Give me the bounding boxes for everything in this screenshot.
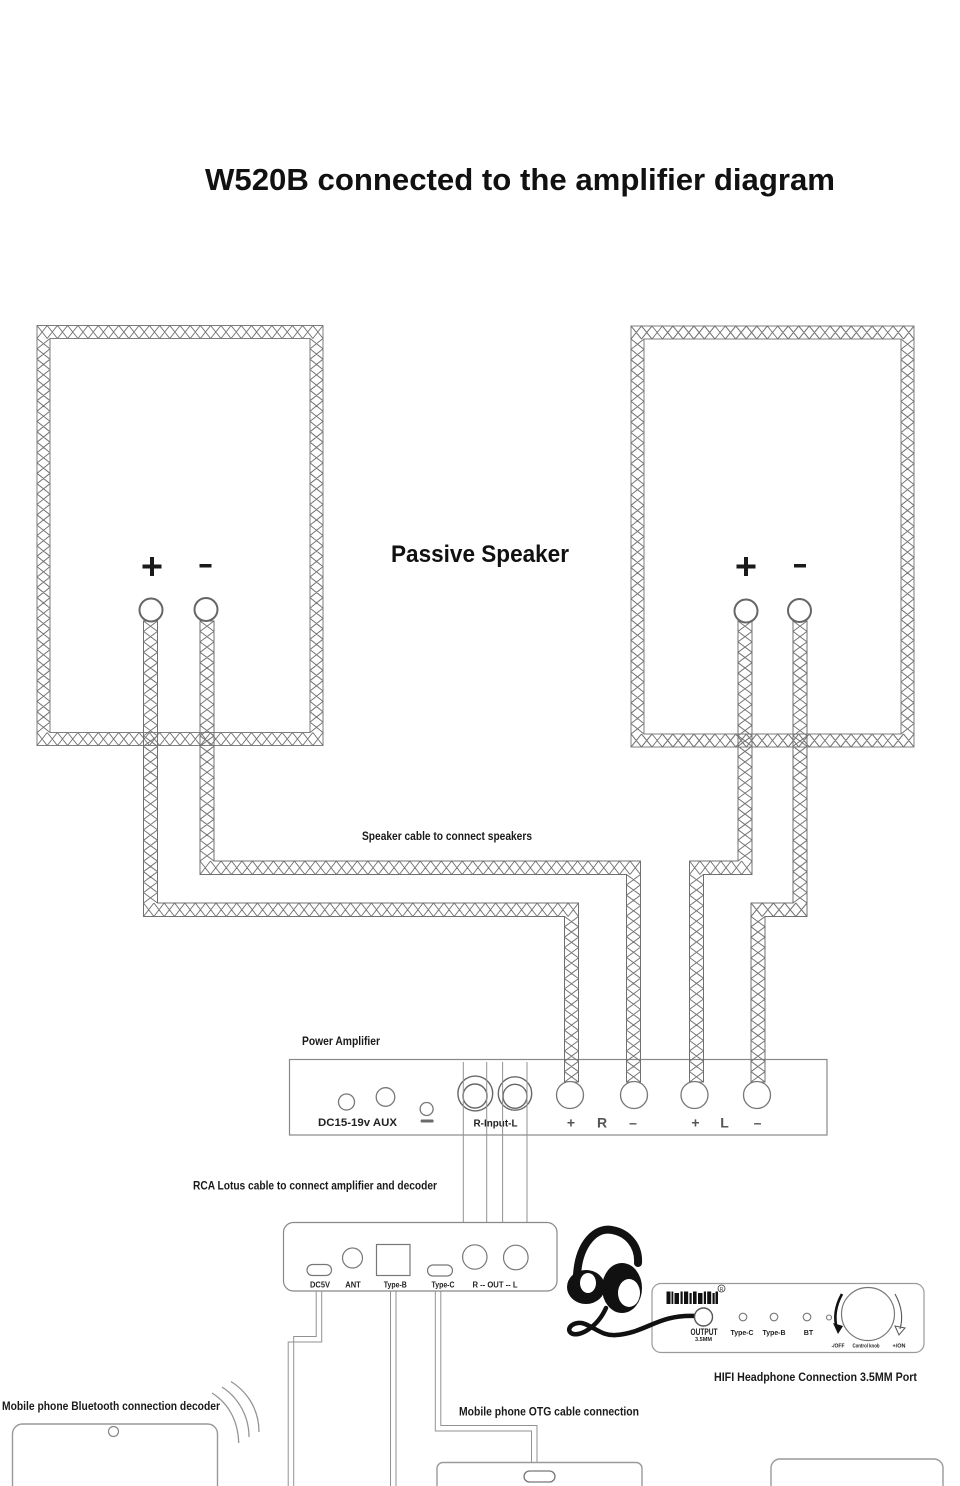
svg-text:W520B connected to the amplifi: W520B connected to the amplifier diagram [205, 162, 835, 197]
svg-text:–: – [629, 1115, 637, 1131]
svg-text:ANT: ANT [345, 1281, 361, 1290]
svg-text:Type-B: Type-B [763, 1328, 787, 1337]
svg-text:BT: BT [804, 1328, 814, 1337]
svg-text:R-Input-L: R-Input-L [474, 1118, 519, 1130]
svg-text:Power Amplifier: Power Amplifier [302, 1036, 380, 1048]
svg-text:R -- OUT -- L: R -- OUT -- L [473, 1281, 518, 1290]
svg-text:Mobile phone Bluetooth connect: Mobile phone Bluetooth connection decode… [2, 1401, 220, 1413]
svg-text:–: – [754, 1115, 762, 1131]
svg-text:Mobile phone OTG cable connect: Mobile phone OTG cable connection [459, 1407, 639, 1419]
svg-text:3.5MM: 3.5MM [695, 1337, 712, 1343]
svg-text:R: R [720, 1287, 724, 1293]
svg-text:OUTPUT: OUTPUT [691, 1327, 718, 1337]
svg-text:L: L [720, 1115, 729, 1131]
svg-text:Control knob: Control knob [853, 1344, 881, 1350]
svg-text:Type-C: Type-C [731, 1328, 755, 1337]
svg-text:Type-C: Type-C [432, 1281, 455, 1290]
svg-text:HIFI Headphone Connection 3.5M: HIFI Headphone Connection 3.5MM Port [714, 1370, 917, 1384]
svg-text:+: + [691, 1115, 699, 1131]
svg-text:DC5V: DC5V [310, 1281, 331, 1290]
svg-text:Speaker cable to connect speak: Speaker cable to connect speakers [362, 829, 532, 843]
svg-text:+: + [567, 1115, 575, 1131]
svg-text:DC15-19v AUX: DC15-19v AUX [318, 1117, 398, 1129]
svg-text:R: R [597, 1115, 607, 1131]
svg-text:Type-B: Type-B [384, 1281, 407, 1290]
svg-text:+/ON: +/ON [893, 1344, 906, 1350]
svg-text:RCA Lotus cable to connect amp: RCA Lotus cable to connect amplifier and… [193, 1181, 437, 1193]
svg-text:-/OFF: -/OFF [832, 1344, 846, 1350]
svg-text:Passive Speaker: Passive Speaker [391, 541, 569, 568]
